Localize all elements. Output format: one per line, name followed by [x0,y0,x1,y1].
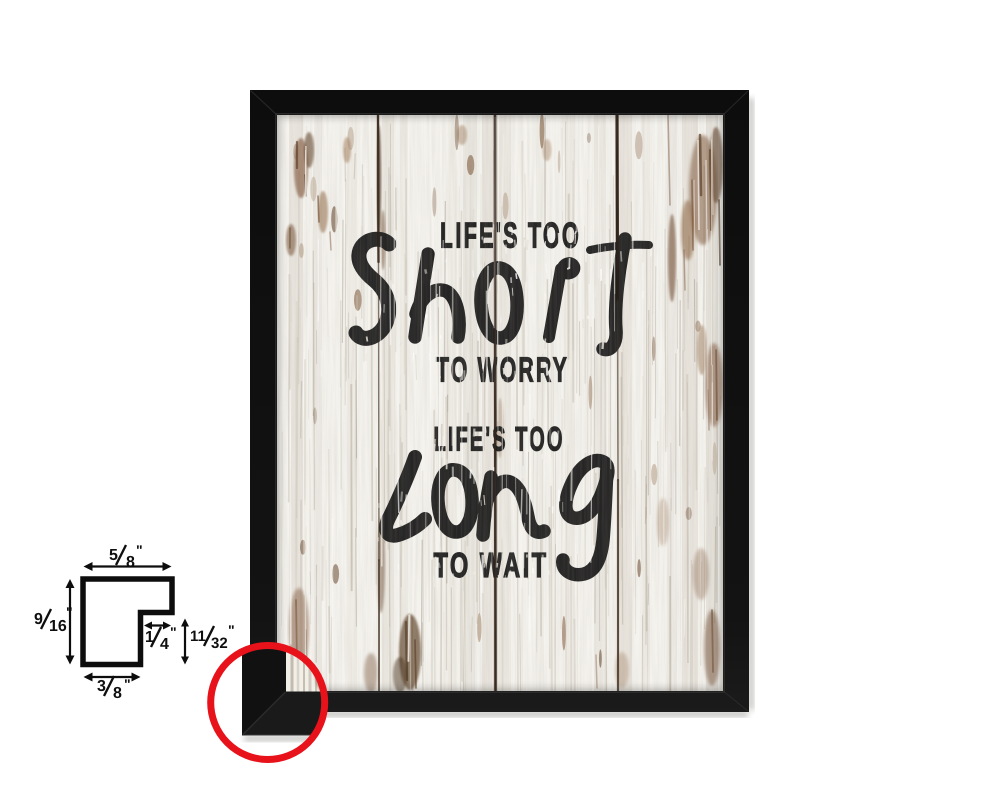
svg-text:": " [170,624,177,640]
svg-text:": " [66,604,73,620]
svg-text:32: 32 [211,635,228,652]
svg-text:8: 8 [113,685,122,702]
svg-text:": " [136,542,143,558]
svg-text:11: 11 [190,628,206,645]
svg-text:16: 16 [49,618,67,635]
svg-text:": " [228,622,235,638]
svg-text:4: 4 [160,636,169,653]
svg-text:": " [124,676,131,692]
svg-text:8: 8 [126,554,135,571]
